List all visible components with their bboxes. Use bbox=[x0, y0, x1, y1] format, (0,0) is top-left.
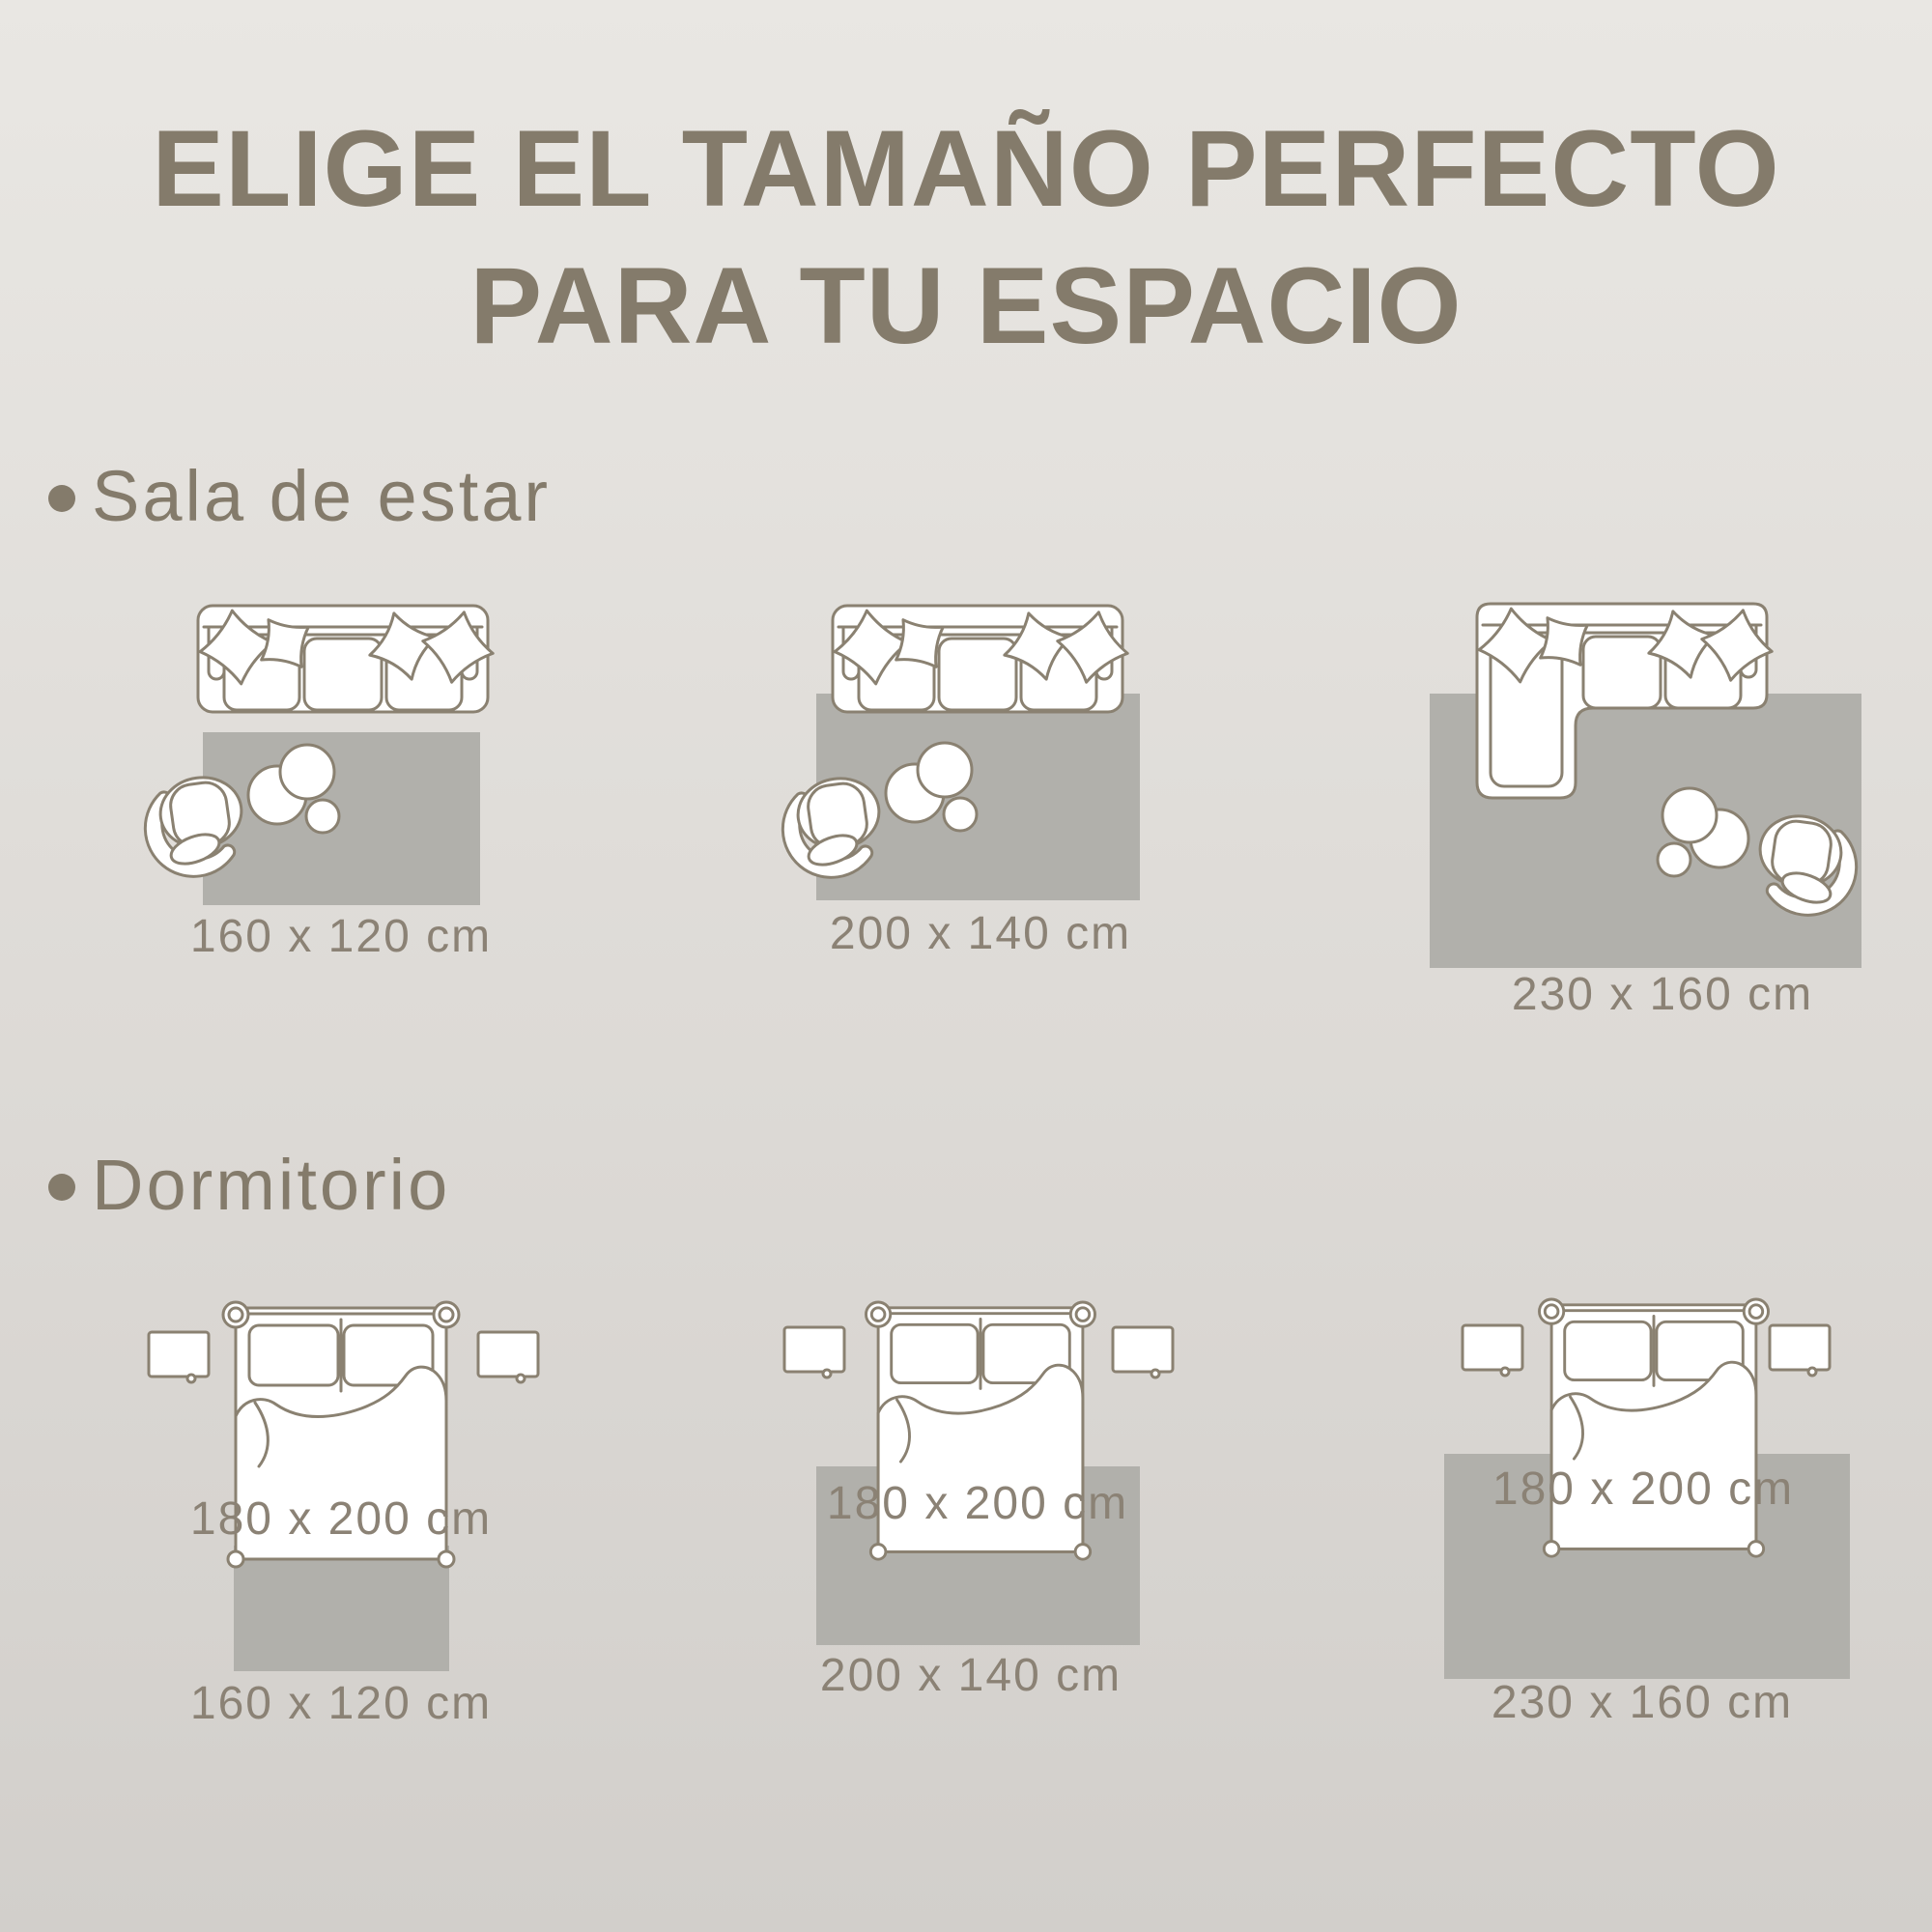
nightstand-illustration bbox=[476, 1330, 540, 1380]
nightstand-illustration bbox=[147, 1330, 211, 1380]
coffee-table-illustration bbox=[243, 739, 350, 836]
rug-size-label: 160 x 120 cm bbox=[190, 1681, 492, 1727]
armchair-illustration bbox=[782, 769, 879, 875]
living-room-size-option-1: 160 x 120 cm bbox=[135, 594, 502, 980]
bed-size-label: 180 x 200 cm bbox=[190, 1496, 492, 1543]
armchair-illustration bbox=[1760, 807, 1857, 913]
pillow-icon bbox=[896, 620, 944, 668]
nightstand-illustration bbox=[1461, 1323, 1524, 1374]
rug-size-label: 230 x 160 cm bbox=[1492, 1680, 1793, 1726]
bedroom-size-option-2: 180 x 200 cm 200 x 140 cm bbox=[763, 1294, 1207, 1739]
page-title-line-2: PARA TU ESPACIO bbox=[0, 238, 1932, 375]
sofa-illustration bbox=[196, 604, 490, 714]
nightstand-illustration bbox=[1768, 1323, 1832, 1374]
armchair-illustration bbox=[145, 768, 241, 874]
pillow-icon bbox=[1541, 618, 1588, 666]
living-room-size-option-3: 230 x 160 cm bbox=[1401, 589, 1884, 1024]
bedroom-size-option-1: 180 x 200 cm 160 x 120 cm bbox=[126, 1294, 570, 1739]
pillow-icon bbox=[262, 620, 309, 668]
rug-size-label: 230 x 160 cm bbox=[1512, 972, 1813, 1018]
rug-size-label: 200 x 140 cm bbox=[830, 911, 1131, 957]
nightstand-illustration bbox=[1111, 1325, 1175, 1376]
rug-size-label: 200 x 140 cm bbox=[820, 1653, 1122, 1699]
bed-size-label: 180 x 200 cm bbox=[1492, 1466, 1794, 1513]
coffee-table-illustration bbox=[1647, 782, 1753, 879]
sofa-illustration bbox=[831, 604, 1124, 714]
section-living-room-label: Sala de estar bbox=[92, 461, 551, 532]
living-room-size-option-2: 200 x 140 cm bbox=[773, 592, 1159, 979]
bullet-icon bbox=[48, 485, 75, 512]
page-title-line-1: ELIGE EL TAMAÑO PERFECTO bbox=[0, 100, 1932, 238]
bed-size-label: 180 x 200 cm bbox=[827, 1481, 1128, 1527]
rug-size-infographic: { "title": { "line1": "ELIGE EL TAMAÑO P… bbox=[0, 0, 1932, 1932]
coffee-table-illustration bbox=[881, 737, 987, 834]
bullet-icon bbox=[48, 1174, 75, 1201]
nightstand-illustration bbox=[782, 1325, 846, 1376]
corner-sofa-illustration bbox=[1475, 602, 1769, 800]
section-bedroom-label: Dormitorio bbox=[92, 1150, 450, 1221]
page-title: ELIGE EL TAMAÑO PERFECTO PARA TU ESPACIO bbox=[0, 100, 1932, 375]
rug-size-label: 160 x 120 cm bbox=[190, 914, 492, 960]
bed-illustration bbox=[1533, 1299, 1775, 1562]
bedroom-size-option-3: 180 x 200 cm 230 x 160 cm bbox=[1391, 1294, 1893, 1739]
